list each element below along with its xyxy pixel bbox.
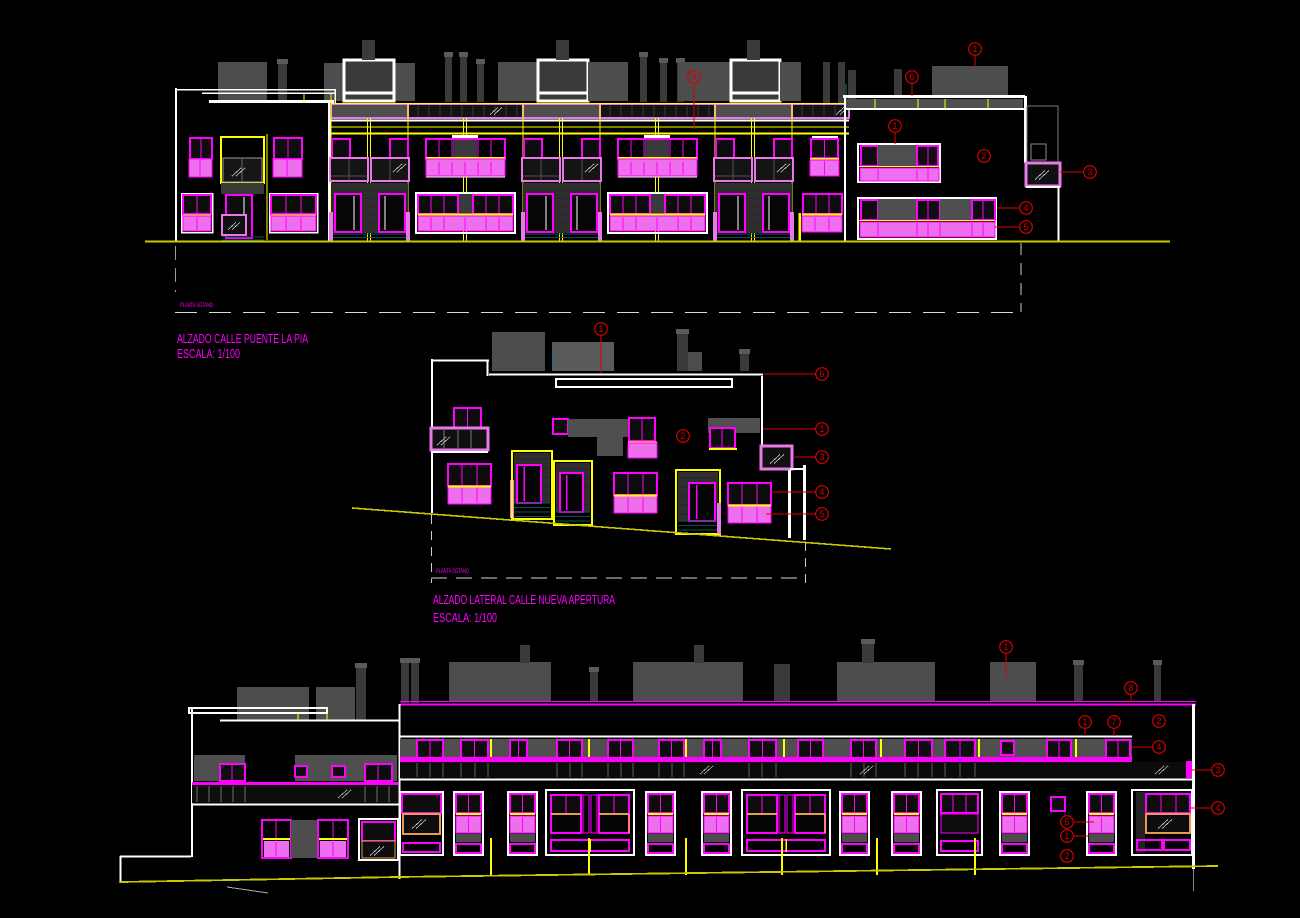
- svg-text:2: 2: [681, 431, 686, 441]
- svg-text:3: 3: [1216, 765, 1221, 775]
- svg-text:5: 5: [1024, 222, 1029, 232]
- svg-text:1: 1: [893, 121, 898, 131]
- svg-text:ALZADO CALLE PUENTE LA PIA: ALZADO CALLE PUENTE LA PIA: [177, 332, 308, 346]
- svg-text:5: 5: [1065, 817, 1070, 827]
- svg-text:8: 8: [1129, 683, 1134, 693]
- svg-text:1: 1: [1065, 831, 1070, 841]
- svg-text:PLANTA SOTANO: PLANTA SOTANO: [436, 568, 469, 575]
- svg-text:1: 1: [973, 44, 978, 54]
- svg-text:ESCALA: 1/100: ESCALA: 1/100: [177, 347, 240, 361]
- svg-text:7: 7: [1112, 717, 1117, 727]
- svg-text:1: 1: [1083, 717, 1088, 727]
- svg-text:ALZADO LATERAL CALLE NUEVA APE: ALZADO LATERAL CALLE NUEVA APERTURA: [433, 593, 615, 607]
- svg-text:4: 4: [820, 487, 825, 497]
- svg-text:4: 4: [1157, 742, 1162, 752]
- svg-text:6: 6: [820, 369, 825, 379]
- svg-text:PLANTA SOTANO: PLANTA SOTANO: [180, 302, 213, 309]
- svg-text:ESCALA: 1/100: ESCALA: 1/100: [433, 611, 497, 625]
- svg-text:1: 1: [820, 424, 825, 434]
- svg-text:4: 4: [1024, 203, 1029, 213]
- svg-text:6: 6: [910, 72, 915, 82]
- svg-text:2: 2: [1065, 851, 1070, 861]
- svg-text:3: 3: [820, 452, 825, 462]
- svg-text:4: 4: [1216, 803, 1221, 813]
- svg-text:5: 5: [820, 509, 825, 519]
- svg-text:1: 1: [1004, 642, 1009, 652]
- svg-text:2: 2: [982, 151, 987, 161]
- svg-text:3: 3: [1088, 167, 1093, 177]
- svg-text:1: 1: [599, 324, 604, 334]
- svg-text:2: 2: [1157, 716, 1162, 726]
- svg-text:9: 9: [692, 72, 697, 82]
